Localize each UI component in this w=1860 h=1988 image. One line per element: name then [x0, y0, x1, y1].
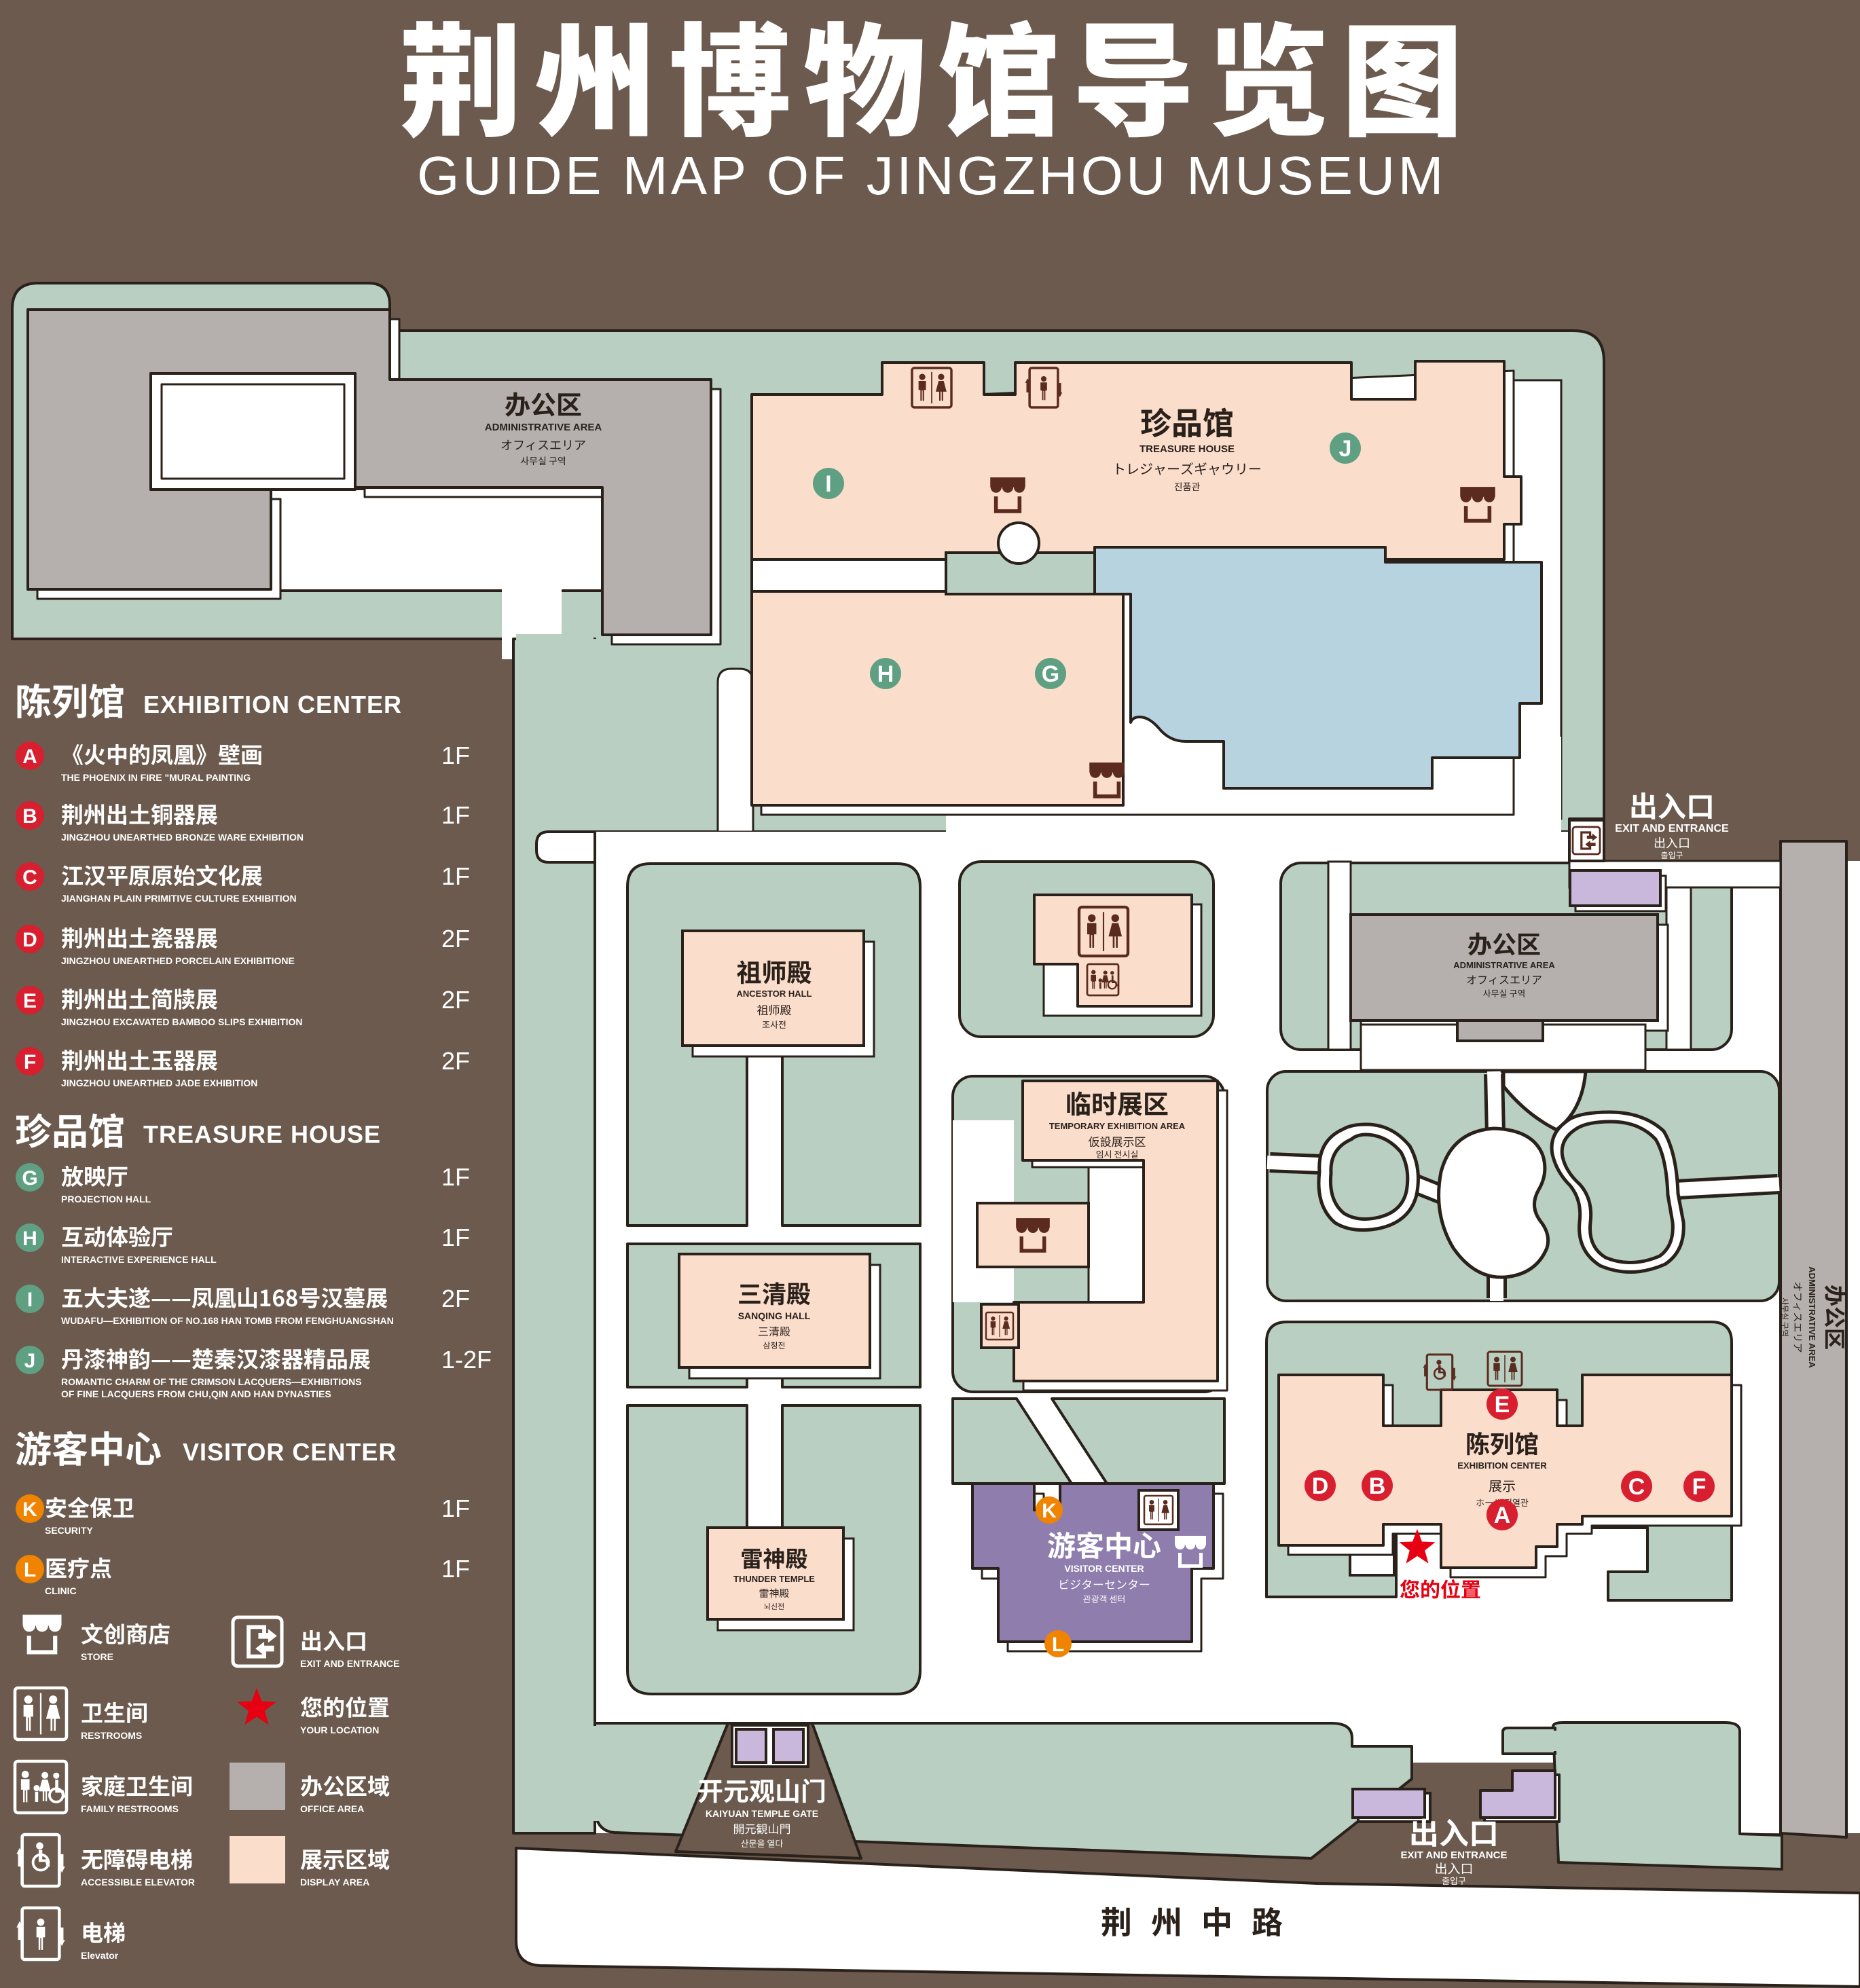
- svg-text:ROMANTIC CHARM OF THE CRIMSON: ROMANTIC CHARM OF THE CRIMSON LACQUERS—E…: [61, 1376, 362, 1387]
- svg-text:DISPLAY AREA: DISPLAY AREA: [300, 1877, 369, 1888]
- svg-text:JINGZHOU UNEARTHED BRONZE WARE: JINGZHOU UNEARTHED BRONZE WARE EXHIBITIO…: [61, 832, 304, 843]
- svg-text:1F: 1F: [441, 1494, 470, 1522]
- svg-text:J: J: [1339, 436, 1352, 462]
- svg-text:D: D: [1312, 1473, 1329, 1499]
- svg-text:I: I: [27, 1289, 33, 1311]
- svg-text:VISITOR CENTER: VISITOR CENTER: [1064, 1563, 1144, 1574]
- svg-text:G: G: [22, 1167, 37, 1190]
- svg-text:1F: 1F: [441, 801, 470, 829]
- svg-text:1F: 1F: [441, 741, 470, 769]
- svg-text:B: B: [1369, 1473, 1386, 1499]
- svg-text:SANQING HALL: SANQING HALL: [738, 1310, 811, 1321]
- svg-text:EXIT AND ENTRANCE: EXIT AND ENTRANCE: [300, 1658, 400, 1669]
- svg-text:G: G: [1042, 661, 1059, 687]
- svg-text:OF FINE LACQUERS FROM CHU,QIN: OF FINE LACQUERS FROM CHU,QIN AND HAN DY…: [61, 1388, 331, 1399]
- svg-text:E: E: [23, 990, 37, 1012]
- svg-text:ADMINISTRATIVE AREA: ADMINISTRATIVE AREA: [1807, 1266, 1817, 1368]
- svg-text:JINGZHOU UNEARTHED JADE EXHIBI: JINGZHOU UNEARTHED JADE EXHIBITION: [61, 1078, 257, 1088]
- svg-text:H: H: [877, 661, 894, 687]
- svg-text:FAMILY RESTROOMS: FAMILY RESTROOMS: [81, 1803, 179, 1814]
- svg-text:A: A: [1494, 1503, 1511, 1528]
- svg-text:EXIT AND ENTRANCE: EXIT AND ENTRANCE: [1615, 823, 1729, 834]
- svg-text:I: I: [825, 471, 831, 497]
- svg-text:ANCESTOR HALL: ANCESTOR HALL: [737, 989, 812, 999]
- svg-text:K: K: [1042, 1500, 1057, 1522]
- svg-text:STORE: STORE: [81, 1651, 113, 1662]
- svg-text:TREASURE HOUSE: TREASURE HOUSE: [1139, 443, 1235, 455]
- svg-text:ADMINISTRATIVE AREA: ADMINISTRATIVE AREA: [1453, 960, 1555, 970]
- svg-text:INTERACTIVE EXPERIENCE HALL: INTERACTIVE EXPERIENCE HALL: [61, 1254, 217, 1265]
- svg-text:1F: 1F: [441, 1223, 470, 1251]
- svg-text:THE PHOENIX IN FIRE "MURAL PAI: THE PHOENIX IN FIRE "MURAL PAINTING: [61, 772, 251, 783]
- svg-text:H: H: [22, 1228, 37, 1250]
- svg-text:C: C: [1628, 1474, 1645, 1500]
- svg-text:Elevator: Elevator: [81, 1950, 119, 1961]
- svg-text:TREASURE HOUSE: TREASURE HOUSE: [143, 1120, 381, 1148]
- svg-text:A: A: [22, 745, 37, 768]
- svg-text:2F: 2F: [441, 986, 470, 1014]
- svg-text:JIANGHAN PLAIN PRIMITIVE CULTU: JIANGHAN PLAIN PRIMITIVE CULTURE EXHIBIT…: [61, 893, 297, 904]
- svg-text:B: B: [22, 805, 37, 828]
- svg-text:THUNDER TEMPLE: THUNDER TEMPLE: [733, 1574, 815, 1584]
- svg-text:2F: 2F: [441, 1285, 470, 1312]
- svg-text:J: J: [24, 1350, 36, 1372]
- svg-text:ADMINISTRATIVE AREA: ADMINISTRATIVE AREA: [485, 422, 602, 433]
- svg-text:GUIDE MAP OF JINGZHOU MUSEUM: GUIDE MAP OF JINGZHOU MUSEUM: [417, 145, 1446, 206]
- svg-text:E: E: [1495, 1392, 1510, 1418]
- svg-text:CLINIC: CLINIC: [45, 1585, 77, 1596]
- svg-text:1F: 1F: [441, 1555, 470, 1583]
- svg-text:1F: 1F: [441, 862, 470, 890]
- svg-text:EXIT AND ENTRANCE: EXIT AND ENTRANCE: [1401, 1849, 1508, 1861]
- svg-text:KAIYUAN TEMPLE GATE: KAIYUAN TEMPLE GATE: [706, 1808, 818, 1819]
- svg-text:YOUR LOCATION: YOUR LOCATION: [300, 1725, 379, 1735]
- svg-text:D: D: [22, 929, 37, 951]
- svg-text:1-2F: 1-2F: [441, 1346, 492, 1374]
- svg-text:2F: 2F: [441, 925, 470, 953]
- svg-text:JINGZHOU EXCAVATED BAMBOO SLIP: JINGZHOU EXCAVATED BAMBOO SLIPS EXHIBITI…: [61, 1016, 302, 1027]
- svg-text:TEMPORARY EXHIBITION AREA: TEMPORARY EXHIBITION AREA: [1049, 1121, 1186, 1131]
- svg-text:L: L: [24, 1559, 36, 1581]
- svg-text:WUDAFU—EXHIBITION OF NO.168 HA: WUDAFU—EXHIBITION OF NO.168 HAN TOMB FRO…: [61, 1315, 394, 1326]
- svg-text:F: F: [1692, 1474, 1707, 1500]
- svg-text:F: F: [24, 1051, 36, 1073]
- svg-text:1F: 1F: [441, 1163, 470, 1191]
- svg-text:ACCESSIBLE ELEVATOR: ACCESSIBLE ELEVATOR: [81, 1877, 195, 1888]
- svg-text:VISITOR CENTER: VISITOR CENTER: [183, 1438, 397, 1466]
- svg-text:EXHIBITION CENTER: EXHIBITION CENTER: [143, 691, 402, 718]
- svg-text:JINGZHOU UNEARTHED PORCELAIN E: JINGZHOU UNEARTHED PORCELAIN EXHIBITIONE: [61, 955, 295, 966]
- svg-text:EXHIBITION CENTER: EXHIBITION CENTER: [1457, 1460, 1547, 1471]
- svg-text:K: K: [22, 1498, 37, 1521]
- svg-text:L: L: [1052, 1634, 1064, 1656]
- svg-text:C: C: [22, 866, 37, 889]
- svg-text:SECURITY: SECURITY: [45, 1525, 93, 1536]
- svg-text:2F: 2F: [441, 1047, 470, 1075]
- svg-text:PROJECTION HALL: PROJECTION HALL: [61, 1194, 151, 1204]
- svg-text:OFFICE AREA: OFFICE AREA: [300, 1803, 364, 1814]
- svg-text:RESTROOMS: RESTROOMS: [81, 1730, 142, 1741]
